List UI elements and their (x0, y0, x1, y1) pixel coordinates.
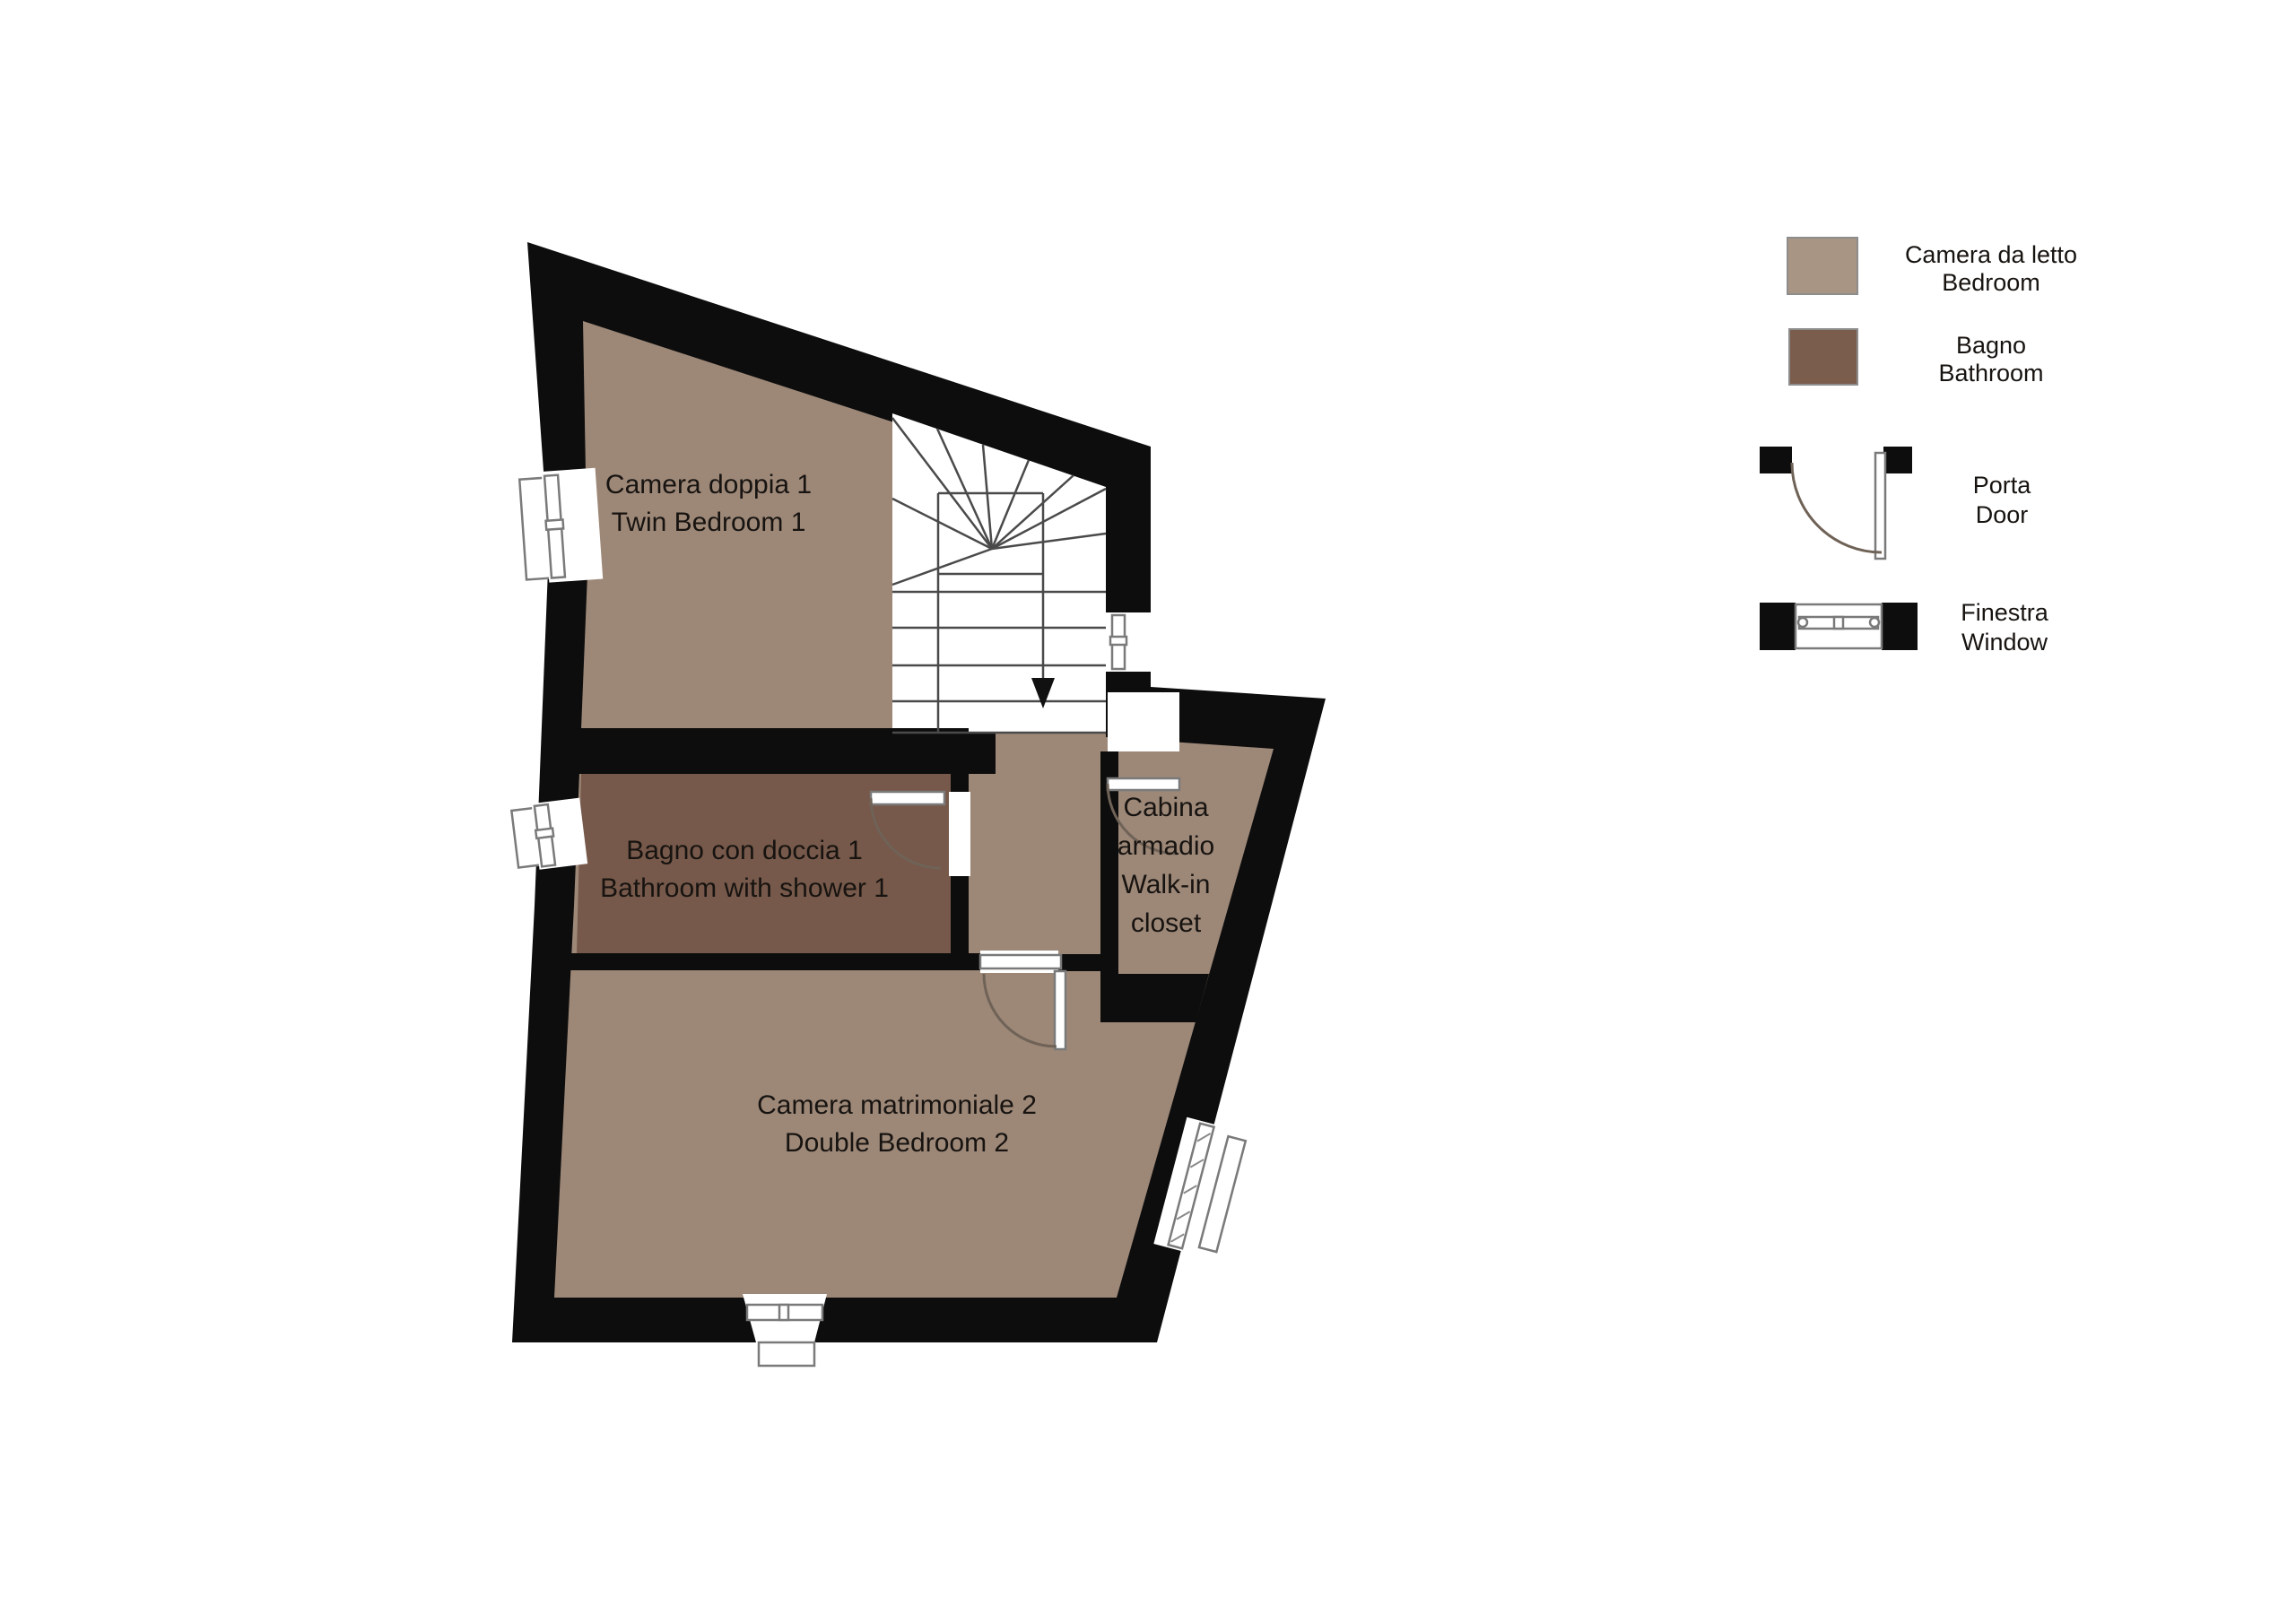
building-footprint: Camera doppia 1 Twin Bedroom 1 Bagno con… (511, 242, 1326, 1366)
closet-label-line1: Cabina (1123, 793, 1208, 822)
floor-plan-page: Camera doppia 1 Twin Bedroom 1 Bagno con… (0, 0, 2296, 1624)
twin-bedroom-label-it: Camera doppia 1 (605, 470, 812, 499)
legend-bedroom-swatch (1787, 238, 1857, 294)
legend-bedroom-label-it: Camera da letto (1905, 241, 2077, 268)
legend-window-symbol (1760, 603, 1918, 650)
legend-bedroom-label-en: Bedroom (1942, 269, 2040, 296)
legend-window-label-en: Window (1961, 629, 2048, 656)
hallway-window (1106, 612, 1152, 672)
closet-label-line2: armadio (1118, 831, 1214, 861)
twin-bedroom-label-en: Twin Bedroom 1 (612, 508, 806, 537)
legend-door-label-en: Door (1976, 501, 2029, 528)
legend-door-symbol (1760, 447, 1912, 559)
legend-bathroom-label-en: Bathroom (1938, 360, 2043, 386)
legend-door-label-it: Porta (1973, 472, 2032, 499)
floor-plan-drawing: Camera doppia 1 Twin Bedroom 1 Bagno con… (0, 0, 2296, 1624)
bathroom-window (511, 798, 587, 873)
legend-window-label-it: Finestra (1961, 599, 2049, 626)
closet-label-line4: closet (1131, 908, 1202, 938)
double-bedroom-label-it: Camera matrimoniale 2 (757, 1090, 1037, 1120)
legend-bathroom-swatch (1789, 329, 1857, 385)
double-bedroom-bottom-window (743, 1294, 827, 1366)
twin-bedroom-window (519, 468, 603, 585)
double-bedroom-label-en: Double Bedroom 2 (785, 1128, 1009, 1158)
bathroom-label-en: Bathroom with shower 1 (600, 873, 889, 903)
closet-label-line3: Walk-in (1122, 870, 1211, 899)
bathroom-label-it: Bagno con doccia 1 (626, 836, 863, 865)
legend: Camera da letto Bedroom Bagno Bathroom P… (1760, 238, 2077, 656)
legend-bathroom-label-it: Bagno (1956, 332, 2026, 359)
